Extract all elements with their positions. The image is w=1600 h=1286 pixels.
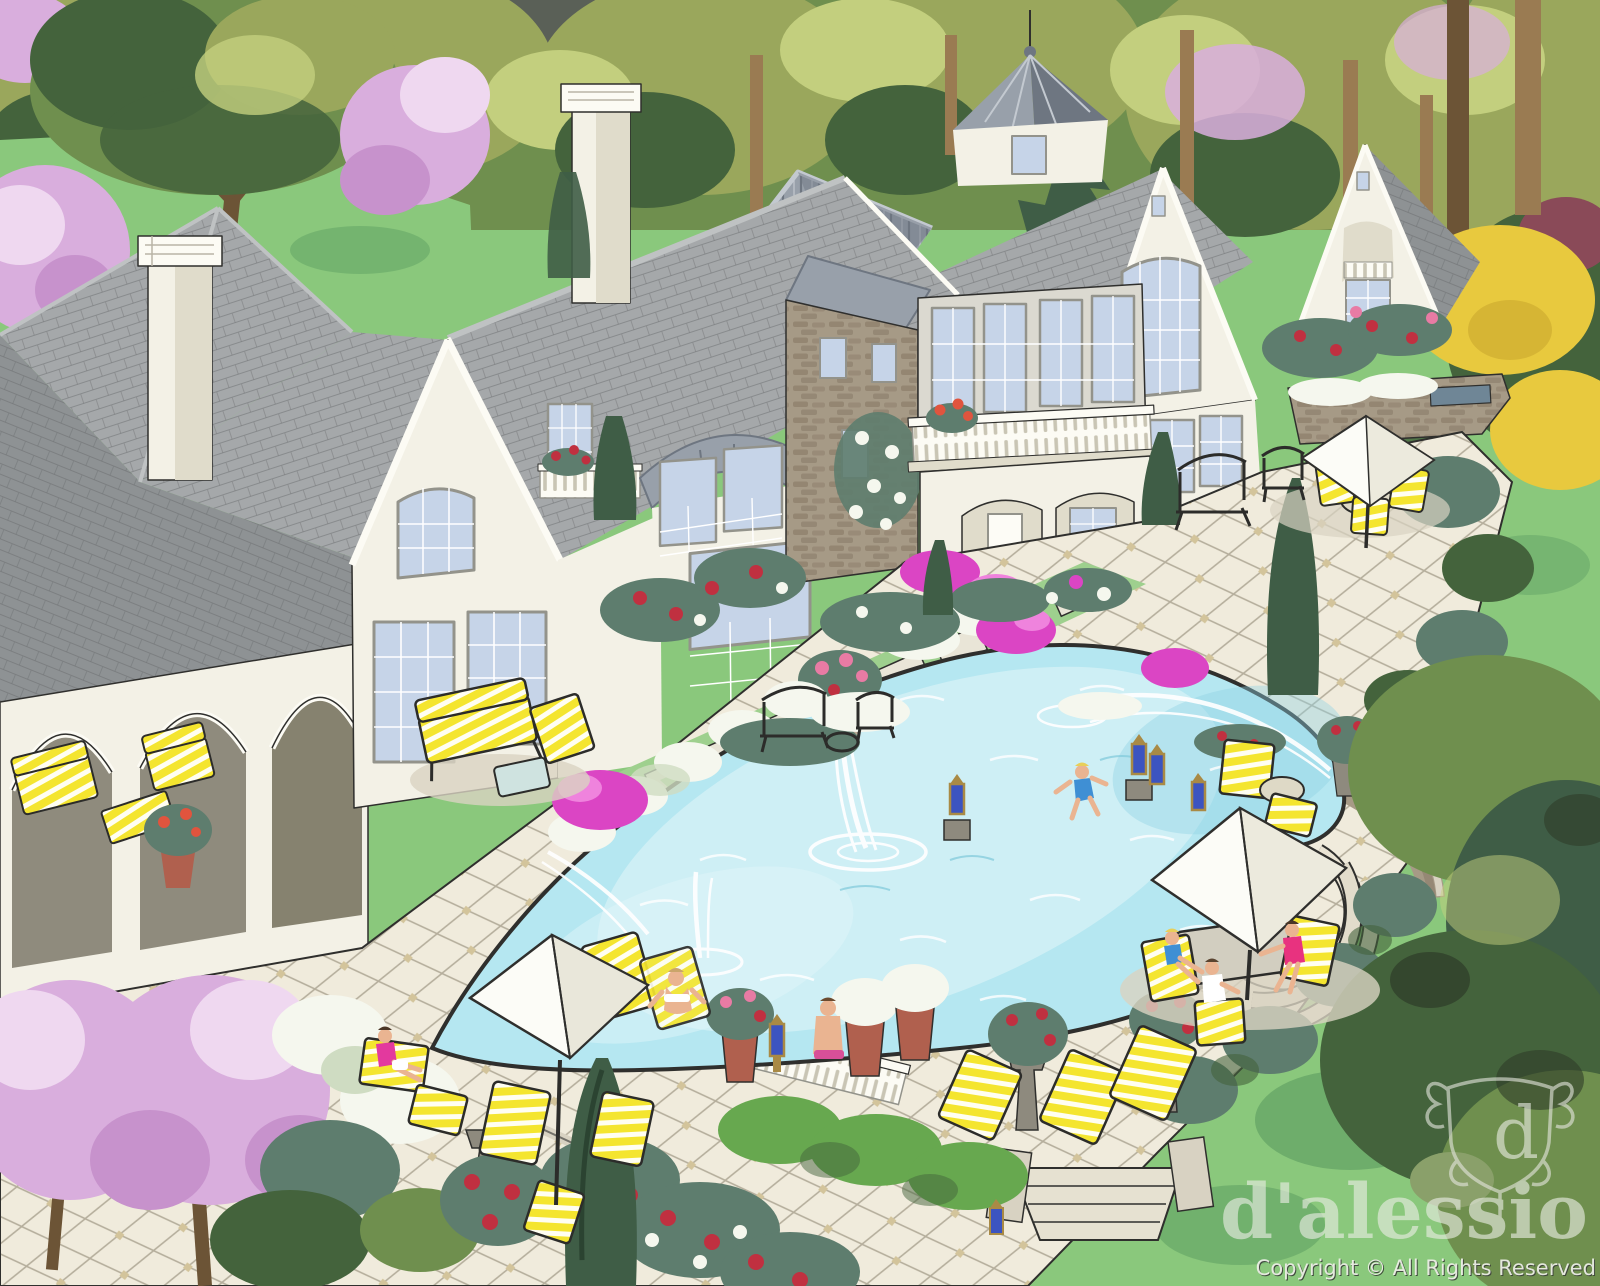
- svg-text:Copyright © All Rights Reserve: Copyright © All Rights Reserved: [1256, 1256, 1596, 1280]
- arched-window: [398, 489, 474, 578]
- rendering-canvas: d d'alessio Copyright © All Rights Reser…: [0, 0, 1600, 1286]
- chimney: [138, 236, 222, 480]
- watermark-monogram: d: [1493, 1091, 1539, 1175]
- copyright-line: Copyright © All Rights Reserved Copyrigh…: [1256, 1256, 1597, 1281]
- estate-illustration: d d'alessio Copyright © All Rights Reser…: [0, 0, 1600, 1286]
- watermark-brand: d'alessio: [1220, 1167, 1588, 1256]
